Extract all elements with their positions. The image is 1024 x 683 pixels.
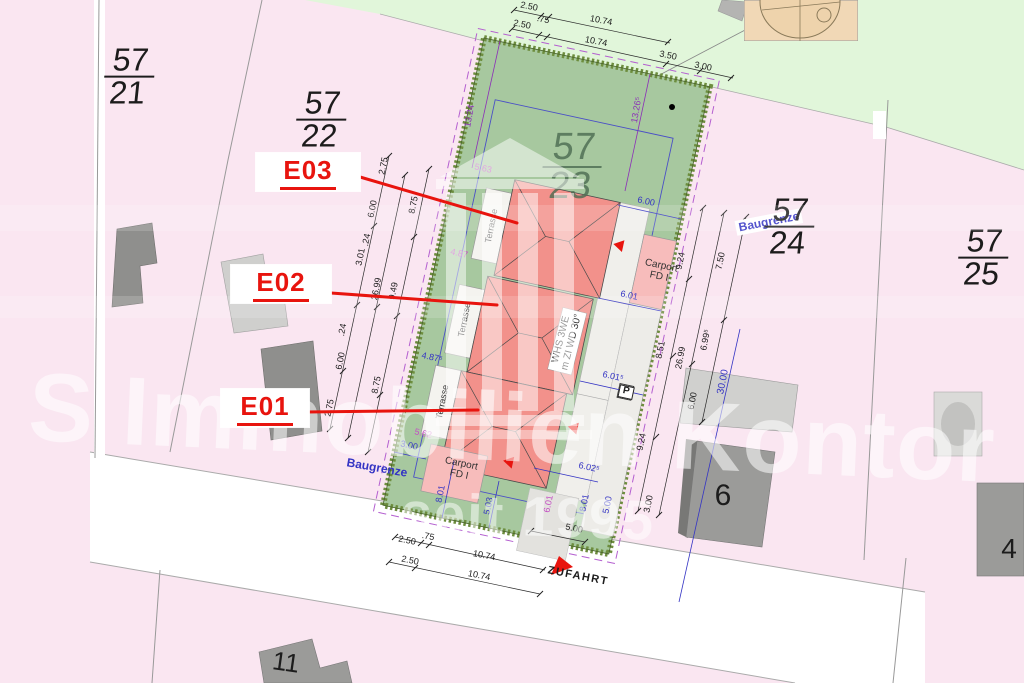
plot-hedge xyxy=(383,38,710,554)
parcel-numerator: 57 xyxy=(104,46,157,75)
boundary-57-24-25 xyxy=(864,100,888,560)
dim-tick xyxy=(509,26,515,32)
parcel-label-57-23: 5723 xyxy=(539,130,606,204)
plot-57-23 xyxy=(372,28,720,571)
dim-tick xyxy=(340,368,346,374)
dim-tick xyxy=(392,534,398,540)
parcel-denominator: 21 xyxy=(101,79,154,108)
building-west-2 xyxy=(261,341,322,440)
roof-e03 xyxy=(494,180,620,299)
boundary-bottom-left xyxy=(152,570,160,683)
compass-leader-line xyxy=(650,29,747,80)
building-small-east xyxy=(934,392,982,456)
dim-top-6: 3.50 xyxy=(658,50,677,63)
survey-point-west xyxy=(287,422,292,427)
watermark-layer: S Immobilien Kontor seit 1995 xyxy=(0,0,1024,683)
dim-tick xyxy=(426,166,432,172)
building-right-wing xyxy=(555,202,650,502)
entrance-arrow-e01 xyxy=(502,455,514,469)
e01-leader-line xyxy=(306,410,478,412)
dim-tick xyxy=(544,34,550,40)
baugrenze-line xyxy=(414,100,673,516)
compass-box xyxy=(744,0,858,41)
house-number-6: 6 xyxy=(715,480,732,512)
dim-top-7: 3.00 xyxy=(693,61,712,74)
dim-bottom-5: 10.74 xyxy=(467,569,491,583)
dim-left-6: 26.99 xyxy=(370,277,384,301)
fraction-bar xyxy=(296,119,346,121)
dim-tick xyxy=(345,435,351,441)
building-11 xyxy=(259,639,352,683)
dim-magenta-4: 6.01 xyxy=(543,494,556,513)
dim-tick xyxy=(700,205,706,211)
parcel-denominator: 24 xyxy=(761,229,814,258)
terrace-label-2: Terrasse xyxy=(457,302,473,338)
dim-blue-10: 30.00 xyxy=(716,369,731,396)
parking-symbol: P xyxy=(617,384,634,400)
dim-tick xyxy=(386,559,392,565)
terrace-e03 xyxy=(471,188,512,264)
dim-tick xyxy=(699,419,705,425)
unit-label-e03-text: E03 xyxy=(280,155,335,190)
compass-circle xyxy=(760,0,840,38)
terrace-label-1: Terrasse xyxy=(484,208,500,244)
e02-leader-line xyxy=(331,293,497,305)
dim-tick xyxy=(411,234,417,240)
parcel-label-57-22: 5722 xyxy=(293,89,349,152)
dim-blue-5: 3.00 xyxy=(399,439,418,452)
dim-tick xyxy=(686,276,692,282)
dim-magenta-2: 4.87 xyxy=(449,247,468,260)
parcel-label-57-25: 5725 xyxy=(955,227,1011,290)
fraction-bar xyxy=(542,166,601,168)
dim-tick xyxy=(697,68,703,74)
terrace-label-3: Terrasse xyxy=(435,384,451,420)
dim-tick xyxy=(582,539,588,545)
baugrenze-label-top: Baugrenze xyxy=(735,208,804,236)
parcel-area-pink xyxy=(0,0,1024,683)
dim-left-4: .24 xyxy=(361,233,373,247)
fraction-bar xyxy=(104,76,154,78)
dim-left-3: 8.75 xyxy=(408,195,421,214)
carport-label-top: Carport FD I xyxy=(641,258,678,286)
dim-tick xyxy=(426,542,432,548)
wing-divider-1 xyxy=(598,298,629,305)
house-number-11: 11 xyxy=(271,646,302,678)
dim-right-7: 9.24 xyxy=(636,432,649,451)
building-light-east xyxy=(680,368,798,432)
dim-right-6: 6.00 xyxy=(687,391,700,410)
building-6 xyxy=(686,441,775,547)
survey-point-plot xyxy=(669,104,675,110)
roof-e01-hips xyxy=(441,371,567,489)
dim-right-1: 9.24 xyxy=(675,251,688,270)
dim-tick xyxy=(354,302,360,308)
dim-tick xyxy=(670,353,676,359)
dim-tick xyxy=(528,528,534,534)
dim-left-11: 2.75 xyxy=(324,398,337,417)
fraction-bar xyxy=(764,226,814,228)
dim-blue-9: 5.00 xyxy=(602,495,615,514)
entrance-arrow-e02 xyxy=(567,421,579,435)
building-light-west xyxy=(221,254,288,333)
dim-blue-6: 8.01 xyxy=(435,484,448,503)
boundary-bottom-right xyxy=(893,558,906,683)
roof-e03-hips xyxy=(494,180,620,299)
unit-annotation-layer: E03E02E01 xyxy=(0,0,1024,683)
dim-left-10: 8.75 xyxy=(371,375,384,394)
dim-blue-8: 8.01 xyxy=(579,493,592,512)
zufahrt-arrow-icon xyxy=(551,556,573,575)
house-number-4: 4 xyxy=(1001,534,1017,564)
dim-tick xyxy=(540,567,546,573)
dim-left-2: 6.00 xyxy=(367,199,380,218)
dim-blue-3: 6.01⁵ xyxy=(602,370,625,384)
building-57-21 xyxy=(112,223,157,307)
dimension-lines-black xyxy=(330,10,746,594)
dim-bottom-1: 2.50 xyxy=(397,535,416,548)
parcel-label-57-21: 5721 xyxy=(101,46,157,109)
dim-tick xyxy=(653,434,659,440)
carport-bottom xyxy=(421,444,488,503)
dim-bottom-2: .75 xyxy=(421,531,435,543)
dim-tick xyxy=(327,426,333,432)
dim-magenta-3: 5.62 xyxy=(413,427,432,440)
building-4 xyxy=(977,483,1024,576)
site-plan-map xyxy=(0,0,1024,683)
parcel-denominator: 25 xyxy=(955,260,1008,289)
parking-box xyxy=(617,384,634,401)
dim-tick xyxy=(365,449,371,455)
dim-magenta-1: 5.63 xyxy=(473,162,492,175)
dim-tick xyxy=(538,13,544,19)
street xyxy=(90,452,925,683)
dim-tick xyxy=(546,14,552,20)
parcel-denominator: 22 xyxy=(293,122,346,151)
watermark-streak-2 xyxy=(0,296,1024,318)
roof-e02-hips xyxy=(467,276,593,395)
dim-left-8: .24 xyxy=(337,323,349,337)
dim-bottom-3: 10.74 xyxy=(472,549,496,563)
dim-blue-11: 4.87⁵ xyxy=(421,351,444,365)
compass-flag xyxy=(718,0,748,21)
dim-right-5: 6.99⁵ xyxy=(699,329,713,352)
dim-blue-1: 6.00 xyxy=(636,195,655,208)
watermark-since: seit 1995 xyxy=(400,479,657,553)
dim-tick xyxy=(665,39,671,45)
boundary-57-21-22 xyxy=(170,0,262,452)
dim-tick xyxy=(394,313,400,319)
plot-lawn xyxy=(383,38,710,554)
roof-e02 xyxy=(467,276,593,395)
dim-right-3: 8.51 xyxy=(655,340,668,359)
dim-tick xyxy=(412,565,418,571)
dim-tick xyxy=(386,153,392,159)
parcel-numerator: 57 xyxy=(958,227,1011,256)
unit-label-e02: E02 xyxy=(231,265,331,303)
dim-bottom-6: 5.00 xyxy=(564,523,583,536)
unit-label-e02-text: E02 xyxy=(253,267,308,302)
dim-blue-4: 6.02⁵ xyxy=(578,461,601,475)
dim-top-3: 2.50 xyxy=(512,19,531,32)
dim-blue-7: 5.03 xyxy=(483,496,496,515)
dim-tick xyxy=(721,210,727,216)
dim-purple-1: 13.24 xyxy=(463,104,476,128)
dim-purple-2: 13.26⁵ xyxy=(630,96,644,124)
parcel-numerator: 57 xyxy=(543,130,606,165)
dim-right-8: 3.00 xyxy=(643,494,656,513)
terrace-e02 xyxy=(445,284,485,358)
dimension-lines-purple xyxy=(472,41,650,191)
dim-tick xyxy=(402,172,408,178)
wing-divider-2 xyxy=(577,394,608,401)
dim-left-7: 9.49 xyxy=(388,281,401,300)
unit-leader-lines xyxy=(0,0,1024,683)
dim-top-1: 2.50 xyxy=(519,1,538,14)
unit-label-e03: E03 xyxy=(256,153,360,191)
terrace-e01 xyxy=(421,365,461,439)
dim-bottom-4: 2.50 xyxy=(400,555,419,568)
plot-boundary-dashed xyxy=(373,28,719,563)
scan-artifact-left xyxy=(94,0,105,456)
dim-tick xyxy=(371,223,377,229)
driveway-exit xyxy=(516,488,578,561)
entrance-arrow-e03 xyxy=(612,238,624,252)
dim-tick xyxy=(728,75,734,81)
dim-tick xyxy=(374,304,380,310)
dim-right-2: 7.50 xyxy=(715,251,728,270)
paved-court xyxy=(580,303,661,537)
street-edge-top xyxy=(90,452,925,592)
dim-tick xyxy=(377,392,383,398)
unit-label-e01-text: E01 xyxy=(237,391,292,426)
tree-canopy xyxy=(941,402,975,446)
dim-left-9: 6.00 xyxy=(335,351,348,370)
carport-label-bottom: Carport FD I xyxy=(441,456,478,484)
dim-right-4: 26.99 xyxy=(674,346,688,370)
baugrenze-label-bottom: Baugrenze xyxy=(346,456,409,479)
boundary-left xyxy=(95,0,99,458)
green-area-top xyxy=(305,0,1024,170)
house-roofs xyxy=(441,177,621,491)
plot-outline xyxy=(383,38,710,554)
dim-tick xyxy=(537,591,543,597)
roof-e01 xyxy=(441,371,567,489)
dim-left-5: 3.01 xyxy=(355,247,368,266)
street-edge-bottom xyxy=(90,562,795,683)
dim-top-5: 10.74 xyxy=(584,35,608,49)
dim-tick xyxy=(721,317,727,323)
parcel-denominator: 23 xyxy=(539,169,602,204)
compass-tick xyxy=(762,2,840,10)
site-plan: 2.5010.742.50.7510.743.503.002.756.008.7… xyxy=(0,0,1024,683)
dim-tick xyxy=(656,512,662,518)
dimension-ticks xyxy=(327,7,749,597)
house-type-label: WHS 3WE m ZI WD 30° xyxy=(548,307,586,374)
carport-top xyxy=(629,234,676,309)
parcel-numerator: 57 xyxy=(296,89,349,118)
dim-left-1: 2.75 xyxy=(378,156,391,175)
unit-label-e01: E01 xyxy=(221,389,309,427)
street-zufahrt-label: ZUFAHRT xyxy=(547,565,610,588)
parcel-label-57-24: 5724 xyxy=(761,196,817,259)
watermark-streak-1 xyxy=(0,205,1024,231)
labels-layer: 2.5010.742.50.7510.743.503.002.756.008.7… xyxy=(0,0,1024,683)
green-pink-boundary xyxy=(380,14,1024,170)
dim-tick xyxy=(511,7,517,13)
watermark-temple-icon xyxy=(0,0,1024,683)
fraction-bar xyxy=(958,257,1008,259)
dim-tick xyxy=(418,540,424,546)
dim-blue-2: 6.01 xyxy=(619,289,638,302)
dim-top-2: 10.74 xyxy=(589,14,613,28)
dim-tick xyxy=(689,361,695,367)
compass-inner-circle xyxy=(817,8,831,22)
scan-artifact-right xyxy=(873,111,886,139)
parcel-numerator: 57 xyxy=(764,196,817,225)
dimension-lines-blue xyxy=(394,205,740,602)
e03-leader-line xyxy=(360,177,517,223)
dim-tick xyxy=(635,508,641,514)
watermark-brand: S Immobilien Kontor xyxy=(26,351,997,505)
dim-tick xyxy=(743,214,749,220)
building-6-shadow xyxy=(678,439,699,538)
dim-tick xyxy=(663,61,669,67)
dim-tick xyxy=(536,32,542,38)
dim-top-4: .75 xyxy=(536,14,550,26)
compass-icon xyxy=(744,0,858,41)
